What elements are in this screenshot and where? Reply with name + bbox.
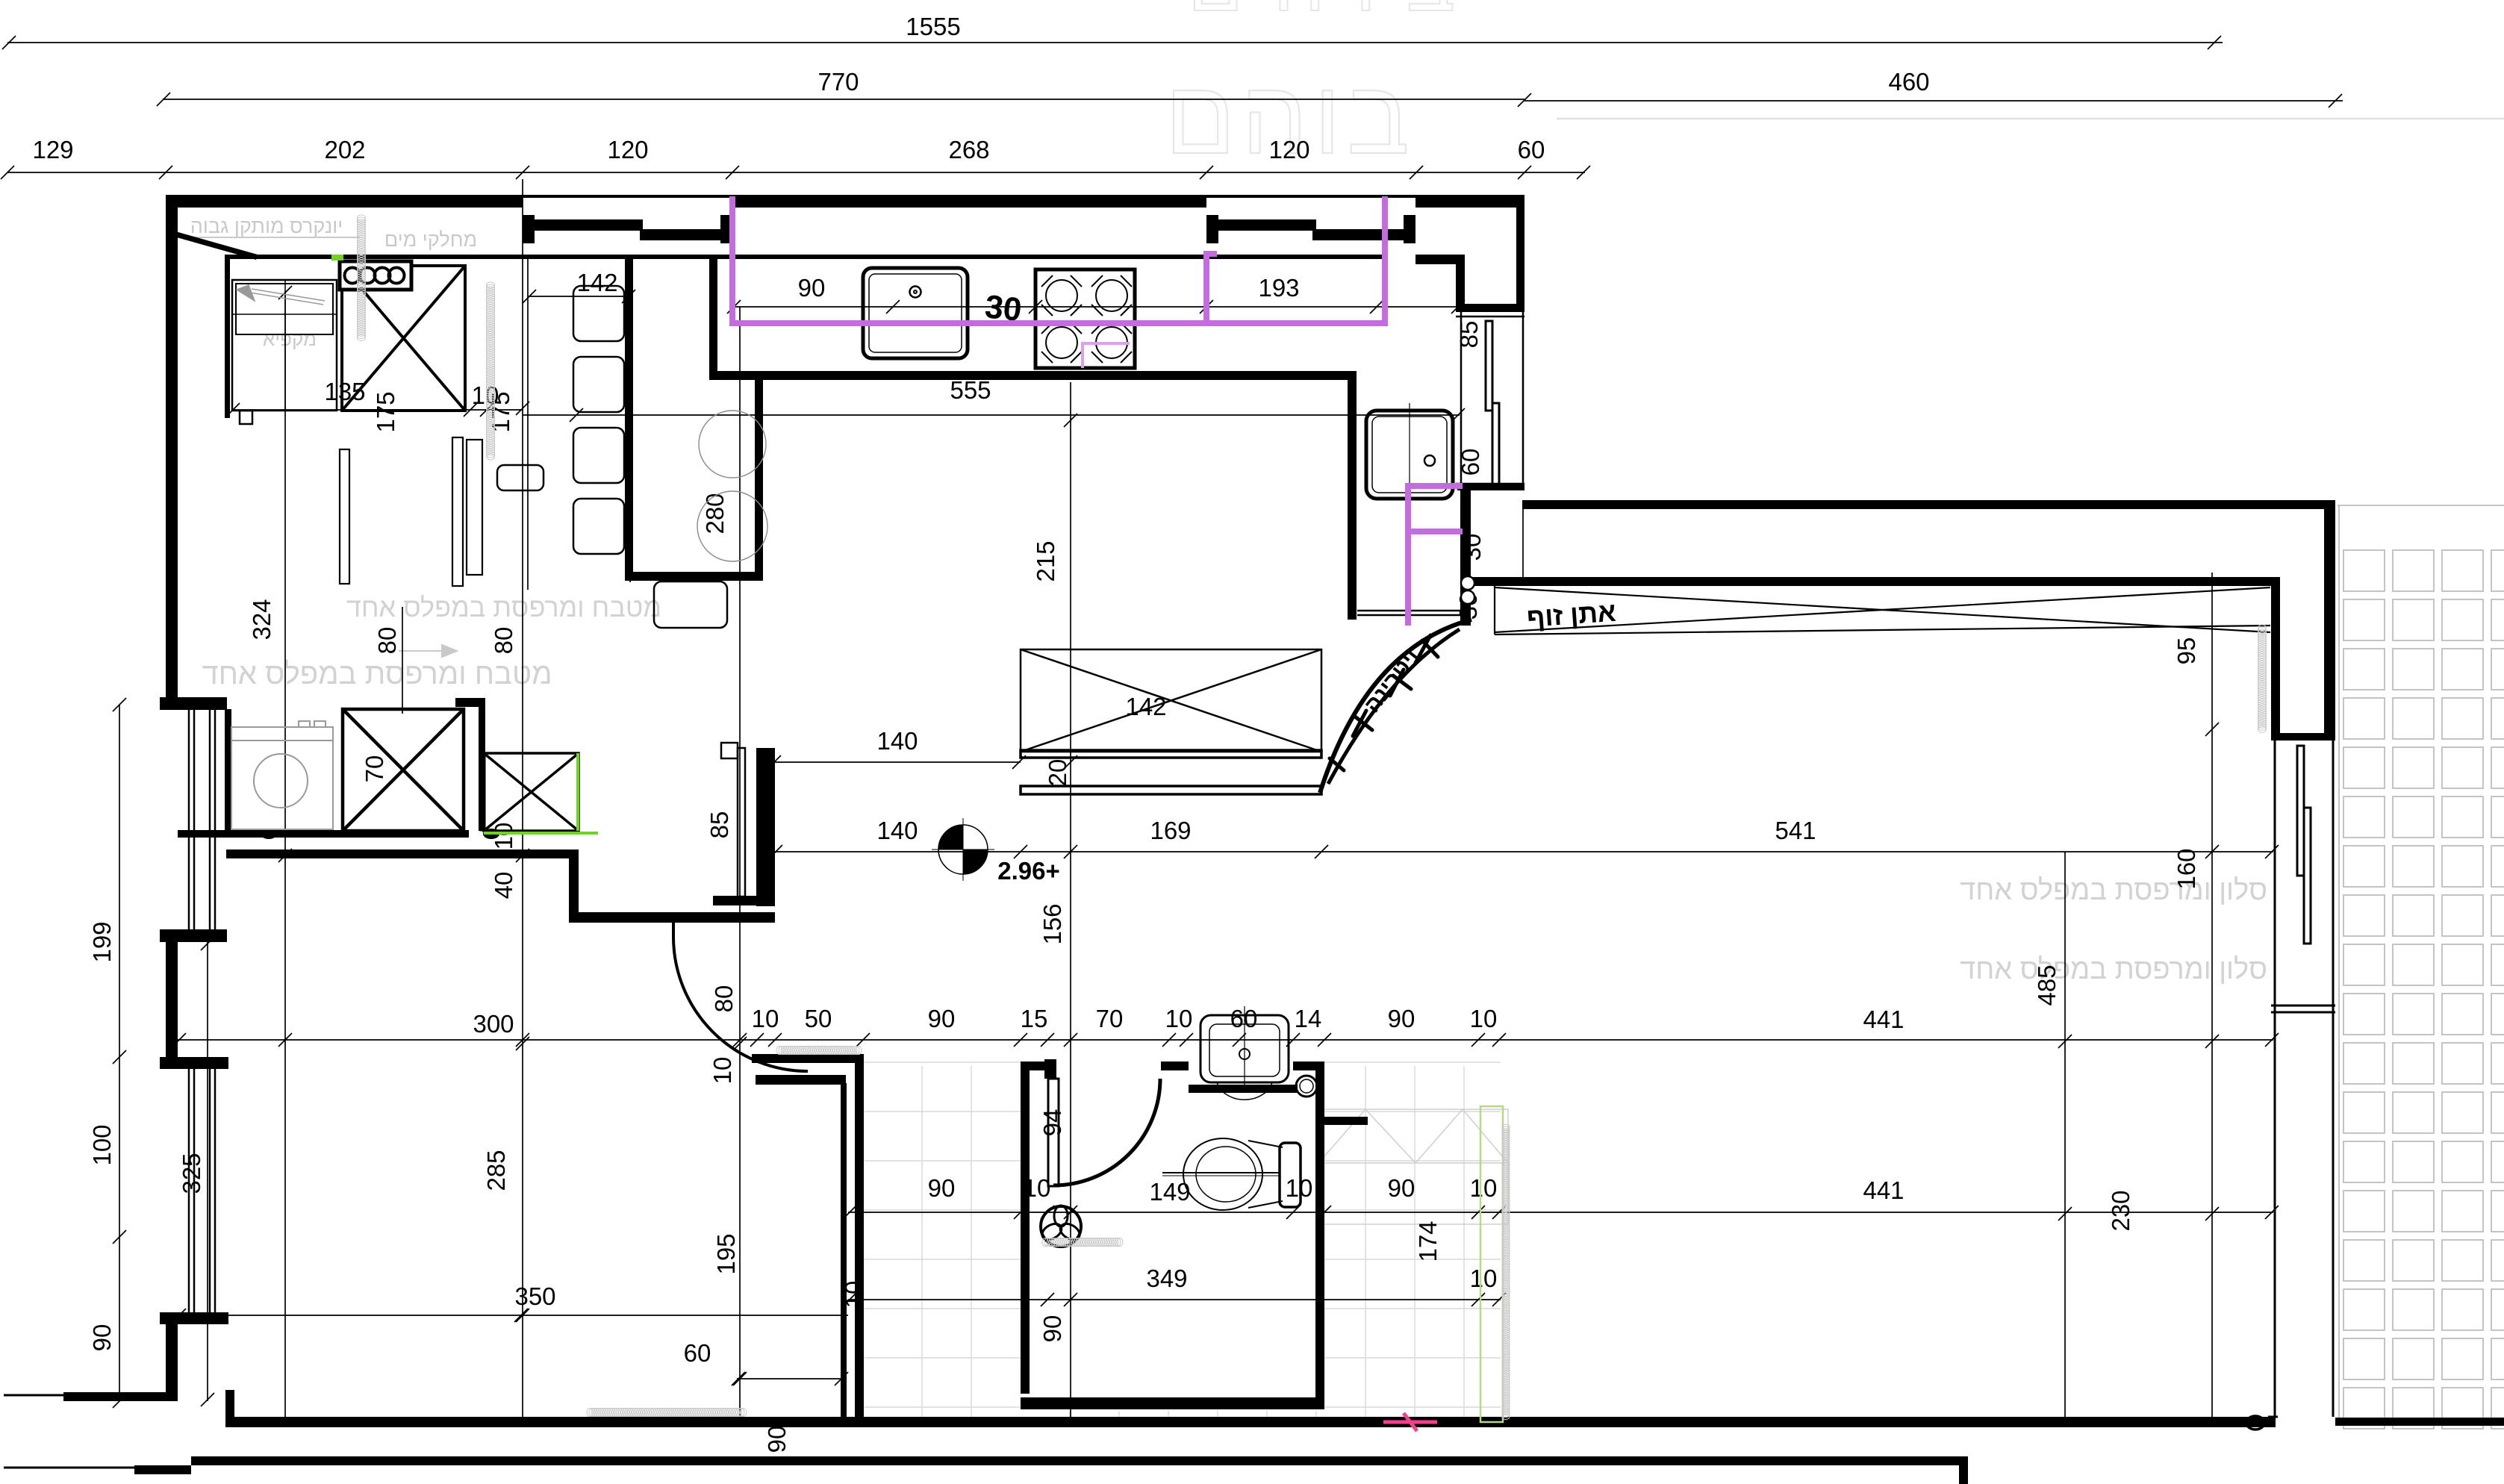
svg-text:10: 10 xyxy=(1165,1005,1193,1032)
svg-text:מחלקי מים: מחלקי מים xyxy=(384,228,477,251)
svg-text:300: 300 xyxy=(473,1010,514,1038)
svg-text:10: 10 xyxy=(1470,1174,1498,1202)
svg-text:199: 199 xyxy=(88,921,116,962)
svg-text:80: 80 xyxy=(710,985,738,1013)
svg-text:85: 85 xyxy=(1455,321,1483,349)
svg-text:350: 350 xyxy=(514,1282,555,1310)
svg-text:174: 174 xyxy=(1414,1220,1442,1262)
svg-text:70: 70 xyxy=(1096,1005,1124,1032)
svg-text:268: 268 xyxy=(948,136,989,163)
svg-text:193: 193 xyxy=(1258,274,1299,302)
svg-text:324: 324 xyxy=(248,599,275,640)
svg-text:60: 60 xyxy=(684,1339,711,1367)
svg-text:מקפיא: מקפיא xyxy=(263,328,317,350)
svg-text:215: 215 xyxy=(1032,540,1059,582)
svg-text:2.96+: 2.96+ xyxy=(997,857,1060,885)
svg-text:90: 90 xyxy=(763,1426,791,1453)
svg-text:349: 349 xyxy=(1146,1265,1187,1292)
svg-text:280: 280 xyxy=(701,493,729,534)
svg-text:129: 129 xyxy=(32,136,73,163)
svg-text:85: 85 xyxy=(706,811,733,839)
svg-text:90: 90 xyxy=(1038,1315,1066,1343)
svg-text:90: 90 xyxy=(1388,1005,1415,1032)
svg-text:מטבח ומרפסת במפלס אחד: מטבח ומרפסת במפלס אחד xyxy=(346,592,661,623)
svg-text:60: 60 xyxy=(1230,1005,1258,1032)
svg-text:94: 94 xyxy=(1038,1109,1066,1137)
svg-text:90: 90 xyxy=(928,1174,956,1202)
svg-text:555: 555 xyxy=(950,376,991,404)
svg-text:סלון ומרפסת במפלס אחד: סלון ומרפסת במפלס אחד xyxy=(1960,954,2267,985)
svg-text:169: 169 xyxy=(1150,817,1191,844)
svg-text:10: 10 xyxy=(752,1005,779,1032)
svg-text:80: 80 xyxy=(490,627,517,655)
svg-text:15: 15 xyxy=(1021,1005,1048,1032)
svg-text:195: 195 xyxy=(712,1233,740,1274)
svg-text:סלון ומרפסת במפלס אחד: סלון ומרפסת במפלס אחד xyxy=(1960,875,2267,906)
svg-text:90: 90 xyxy=(88,1324,116,1352)
svg-text:140: 140 xyxy=(876,817,918,844)
svg-text:156: 156 xyxy=(1038,903,1066,944)
svg-text:10: 10 xyxy=(1286,1174,1313,1202)
svg-text:1555: 1555 xyxy=(906,13,960,40)
svg-text:40: 40 xyxy=(490,872,517,900)
svg-text:50: 50 xyxy=(805,1005,832,1032)
svg-text:441: 441 xyxy=(1863,1006,1904,1033)
svg-text:מטבח ומרפסת במפלס אחד: מטבח ומרפסת במפלס אחד xyxy=(202,658,552,690)
svg-text:90: 90 xyxy=(798,274,826,302)
svg-text:60: 60 xyxy=(1518,136,1545,163)
svg-text:202: 202 xyxy=(324,136,365,163)
svg-text:10: 10 xyxy=(1470,1265,1498,1292)
svg-text:142: 142 xyxy=(576,269,617,296)
svg-text:90: 90 xyxy=(1388,1174,1415,1202)
svg-text:10: 10 xyxy=(708,1057,736,1085)
svg-text:120: 120 xyxy=(1268,136,1309,163)
svg-text:230: 230 xyxy=(2107,1190,2134,1231)
svg-text:20: 20 xyxy=(1044,759,1071,787)
svg-text:541: 541 xyxy=(1775,817,1816,844)
svg-text:325: 325 xyxy=(178,1153,205,1194)
svg-text:120: 120 xyxy=(607,136,648,163)
svg-text:14: 14 xyxy=(1295,1005,1322,1032)
svg-text:90: 90 xyxy=(928,1005,956,1032)
svg-text:100: 100 xyxy=(88,1124,116,1165)
svg-text:10: 10 xyxy=(1470,1005,1498,1032)
svg-text:140: 140 xyxy=(876,727,918,755)
svg-text:460: 460 xyxy=(1888,68,1929,96)
svg-text:בוהם: בוהם xyxy=(1188,0,1486,28)
svg-text:285: 285 xyxy=(482,1150,510,1191)
svg-text:יונקרס מותקן גבוה: יונקרס מותקן גבוה xyxy=(190,215,343,237)
svg-text:485: 485 xyxy=(2033,964,2061,1006)
svg-text:160: 160 xyxy=(2173,848,2200,889)
svg-text:441: 441 xyxy=(1863,1176,1904,1204)
svg-text:95: 95 xyxy=(2173,637,2200,665)
svg-text:70: 70 xyxy=(361,755,388,783)
svg-text:אתן זוף: אתן זוף xyxy=(1526,596,1617,633)
svg-text:80: 80 xyxy=(373,627,401,655)
svg-text:770: 770 xyxy=(817,68,859,96)
